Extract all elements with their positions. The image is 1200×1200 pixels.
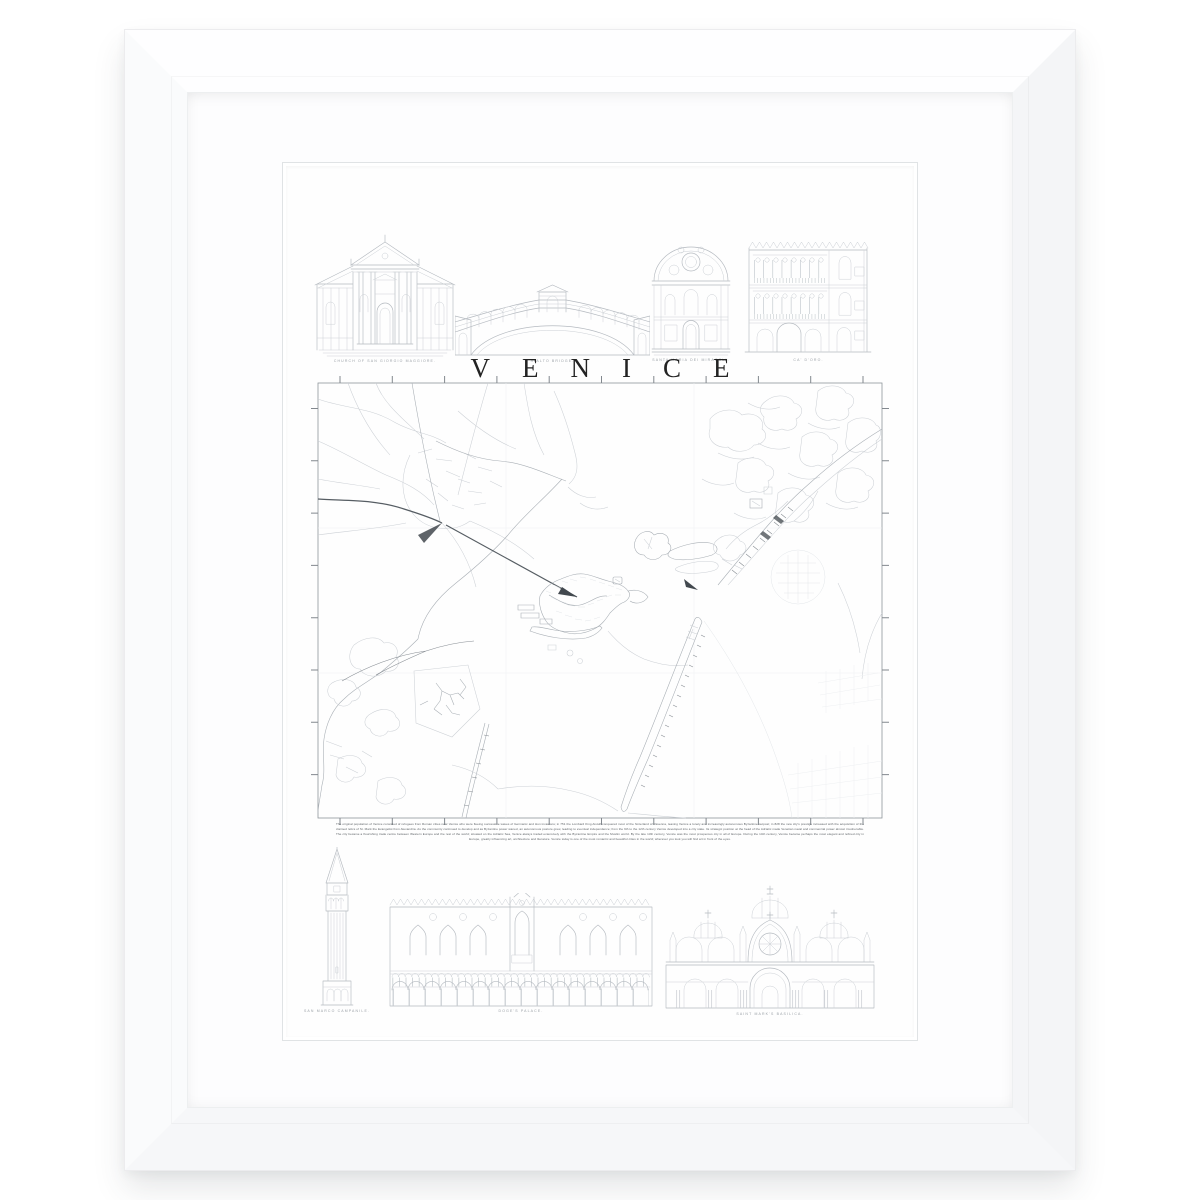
venice-lagoon-map — [310, 375, 890, 826]
mat-board: CHURCH OF SAN GIORGIO MAGGIORE. RIALTO B… — [187, 92, 1013, 1108]
figure-miracoli: SANTA MARIA DEI MIRACOLI. — [648, 237, 734, 363]
history-paragraph: The original population of Venice consis… — [336, 822, 864, 842]
campanile-elevation-drawing — [318, 847, 356, 1007]
figure-doges-palace: DOGE'S PALACE. — [384, 893, 658, 1014]
figure-ca-doro: CA' D'ORO. — [743, 239, 874, 363]
map-barrier-islands — [452, 429, 882, 818]
caption-saint-marks: SAINT MARK'S BASILICA. — [736, 1013, 803, 1017]
figure-san-giorgio: CHURCH OF SAN GIORGIO MAGGIORE. — [313, 232, 457, 364]
print-paper: CHURCH OF SAN GIORGIO MAGGIORE. RIALTO B… — [286, 166, 914, 1037]
figure-campanile: SAN MARCO CAMPANILE. — [277, 847, 397, 1014]
ca-doro-elevation-drawing — [743, 239, 874, 356]
picture-frame: CHURCH OF SAN GIORGIO MAGGIORE. RIALTO B… — [125, 30, 1075, 1170]
doges-palace-elevation-drawing — [384, 893, 658, 1007]
product-photo: CHURCH OF SAN GIORGIO MAGGIORE. RIALTO B… — [0, 0, 1200, 1200]
san-giorgio-elevation-drawing — [313, 232, 457, 357]
caption-doges-palace: DOGE'S PALACE. — [499, 1010, 544, 1014]
mat-window: CHURCH OF SAN GIORGIO MAGGIORE. RIALTO B… — [283, 163, 917, 1040]
map-mainland-roads — [318, 383, 608, 639]
map-border — [318, 383, 882, 818]
caption-campanile: SAN MARCO CAMPANILE. — [304, 1010, 370, 1014]
miracoli-elevation-drawing — [648, 237, 734, 356]
map-mainland-fields — [771, 550, 882, 818]
map-venice-island — [518, 574, 688, 666]
map-north-lagoon — [634, 386, 880, 573]
saint-marks-elevation-drawing — [662, 878, 878, 1010]
figure-saint-marks: SAINT MARK'S BASILICA. — [662, 878, 878, 1017]
rialto-bridge-elevation-drawing — [455, 282, 650, 357]
map-south-lagoon — [318, 638, 480, 813]
figure-rialto-bridge: RIALTO BRIDGE. — [455, 282, 650, 364]
map-graticule — [318, 383, 882, 818]
